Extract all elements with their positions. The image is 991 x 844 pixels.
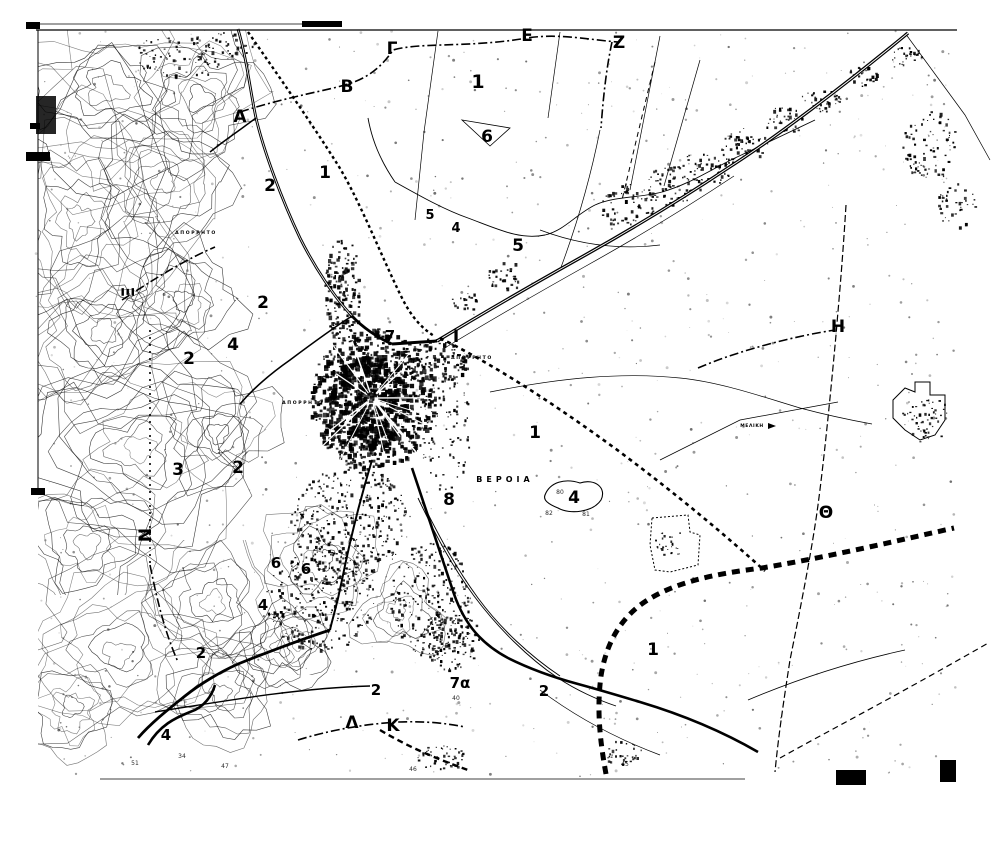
noise-dot bbox=[281, 103, 283, 105]
noise-dot bbox=[442, 139, 444, 141]
noise-dot bbox=[311, 551, 313, 553]
noise-dot bbox=[820, 642, 822, 644]
urban-block bbox=[331, 371, 335, 375]
urban-block bbox=[338, 306, 341, 308]
urban-block bbox=[418, 551, 421, 554]
noise-dot bbox=[699, 57, 700, 58]
urban-block bbox=[361, 445, 364, 449]
urban-block bbox=[469, 644, 471, 645]
urban-block bbox=[372, 427, 377, 434]
urban-block bbox=[314, 549, 315, 550]
urban-block bbox=[349, 569, 351, 570]
urban-block bbox=[454, 385, 456, 387]
village-building bbox=[774, 126, 777, 129]
urban-block bbox=[344, 370, 348, 374]
urban-block bbox=[442, 373, 444, 375]
urban-block bbox=[333, 284, 336, 288]
urban-block bbox=[369, 585, 372, 588]
urban-block bbox=[304, 581, 307, 584]
urban-block bbox=[414, 346, 416, 347]
noise-dot bbox=[426, 491, 428, 493]
urban-block bbox=[401, 374, 403, 376]
urban-block bbox=[323, 527, 325, 529]
noise-dot bbox=[941, 50, 944, 53]
noise-dot bbox=[355, 670, 357, 672]
village-building bbox=[701, 163, 702, 165]
urban-block bbox=[332, 487, 334, 489]
urban-block bbox=[313, 510, 314, 512]
urban-block bbox=[438, 574, 440, 576]
village-building bbox=[836, 95, 838, 97]
noise-dot bbox=[628, 501, 629, 502]
noise-dot bbox=[249, 411, 251, 413]
village-building bbox=[814, 98, 817, 102]
noise-dot bbox=[548, 370, 550, 372]
noise-dot bbox=[331, 274, 333, 276]
village-building bbox=[910, 125, 912, 128]
village-building bbox=[909, 47, 911, 49]
noise-dot bbox=[294, 462, 297, 465]
noise-dot bbox=[591, 192, 594, 195]
village-building bbox=[205, 70, 206, 71]
village-building bbox=[913, 155, 916, 158]
noise-dot bbox=[36, 296, 37, 297]
village-building bbox=[947, 191, 949, 193]
urban-block bbox=[360, 580, 361, 581]
urban-block bbox=[363, 505, 364, 507]
noise-dot bbox=[660, 610, 661, 611]
village-building bbox=[672, 543, 674, 545]
noise-dot bbox=[752, 346, 754, 348]
urban-block bbox=[355, 262, 357, 264]
village-building bbox=[616, 749, 618, 751]
village-building bbox=[736, 136, 737, 137]
village-building bbox=[621, 193, 622, 194]
urban-block bbox=[278, 618, 279, 619]
village-building bbox=[779, 109, 781, 111]
noise-dot bbox=[131, 660, 133, 662]
urban-block bbox=[406, 348, 409, 350]
urban-block bbox=[346, 608, 348, 611]
urban-block bbox=[293, 636, 295, 639]
noise-dot bbox=[463, 526, 464, 527]
urban-block bbox=[322, 491, 324, 492]
noise-dot bbox=[589, 689, 590, 690]
urban-block bbox=[432, 441, 434, 443]
noise-dot bbox=[674, 591, 676, 593]
urban-block bbox=[438, 620, 441, 622]
urban-block bbox=[430, 427, 432, 430]
urban-block bbox=[325, 576, 327, 577]
village-building bbox=[217, 66, 219, 68]
urban-block bbox=[357, 632, 359, 633]
village-building bbox=[872, 76, 875, 79]
village-building bbox=[965, 223, 968, 226]
urban-block bbox=[363, 557, 365, 559]
urban-block bbox=[336, 558, 339, 561]
urban-block bbox=[416, 553, 417, 554]
urban-block bbox=[351, 267, 354, 270]
urban-block bbox=[394, 389, 399, 393]
noise-dot bbox=[222, 523, 224, 525]
urban-block bbox=[342, 272, 345, 275]
noise-dot bbox=[445, 187, 447, 189]
urban-block bbox=[390, 501, 392, 504]
village-building bbox=[942, 168, 945, 171]
village-building bbox=[707, 155, 709, 156]
village-building bbox=[898, 48, 899, 50]
urban-block bbox=[319, 480, 320, 481]
urban-block bbox=[384, 408, 386, 410]
urban-block bbox=[312, 594, 313, 595]
noise-dot bbox=[910, 623, 912, 625]
urban-block bbox=[370, 342, 373, 346]
urban-block bbox=[430, 364, 432, 366]
noise-dot bbox=[284, 542, 286, 544]
urban-block bbox=[360, 449, 362, 451]
urban-block bbox=[273, 617, 276, 619]
noise-dot bbox=[359, 531, 361, 533]
noise-dot bbox=[692, 626, 693, 627]
noise-dot bbox=[224, 459, 225, 460]
urban-block bbox=[397, 377, 402, 382]
noise-dot bbox=[933, 79, 936, 82]
village-building bbox=[913, 164, 914, 165]
urban-block bbox=[454, 650, 456, 653]
urban-block bbox=[421, 390, 425, 395]
noise-dot bbox=[84, 755, 86, 757]
urban-block bbox=[305, 609, 307, 610]
urban-block bbox=[318, 376, 321, 380]
village-building bbox=[928, 432, 930, 434]
noise-dot bbox=[260, 754, 262, 756]
urban-block bbox=[431, 438, 433, 440]
noise-dot bbox=[391, 220, 393, 222]
urban-block bbox=[342, 601, 345, 604]
urban-block bbox=[268, 590, 269, 591]
village-building bbox=[974, 199, 976, 201]
urban-block bbox=[337, 241, 340, 243]
village-building bbox=[960, 209, 963, 211]
urban-block bbox=[322, 556, 323, 557]
urban-block bbox=[339, 291, 342, 293]
urban-block bbox=[400, 445, 403, 449]
urban-block bbox=[333, 277, 336, 280]
noise-dot bbox=[704, 643, 705, 644]
noise-dot bbox=[636, 39, 637, 40]
urban-block bbox=[378, 537, 380, 538]
urban-block bbox=[321, 590, 323, 591]
village-building bbox=[659, 183, 661, 185]
village-building bbox=[207, 62, 208, 64]
village-building bbox=[724, 164, 726, 167]
urban-block bbox=[456, 422, 457, 424]
urban-block bbox=[390, 483, 391, 485]
urban-block bbox=[448, 411, 450, 413]
urban-block bbox=[329, 254, 332, 258]
urban-block bbox=[317, 642, 318, 644]
urban-block bbox=[304, 524, 305, 525]
noise-dot bbox=[823, 162, 824, 163]
urban-block bbox=[353, 332, 356, 334]
noise-dot bbox=[149, 232, 151, 234]
noise-dot bbox=[447, 539, 448, 540]
place-label: ΑΠΟΡΡΗΤΟ bbox=[175, 230, 217, 236]
noise-dot bbox=[523, 177, 525, 179]
urban-block bbox=[339, 550, 342, 553]
noise-dot bbox=[615, 769, 618, 772]
urban-block bbox=[463, 464, 465, 467]
urban-block bbox=[397, 354, 399, 356]
noise-dot bbox=[567, 721, 570, 724]
noise-dot bbox=[307, 111, 308, 112]
urban-block bbox=[350, 493, 353, 497]
urban-block bbox=[374, 479, 376, 481]
urban-block bbox=[360, 516, 361, 517]
noise-dot bbox=[387, 622, 388, 623]
urban-block bbox=[433, 399, 437, 401]
urban-block bbox=[385, 424, 387, 427]
urban-block bbox=[383, 500, 385, 502]
zone-number: 5 bbox=[512, 236, 524, 256]
urban-block bbox=[312, 615, 315, 618]
noise-dot bbox=[457, 595, 459, 597]
noise-dot bbox=[633, 201, 634, 202]
urban-block bbox=[416, 371, 418, 374]
urban-block bbox=[311, 515, 313, 517]
urban-block bbox=[327, 408, 329, 411]
noise-dot bbox=[366, 174, 369, 177]
noise-dot bbox=[954, 686, 957, 689]
urban-block bbox=[331, 262, 333, 264]
noise-dot bbox=[849, 357, 850, 358]
noise-dot bbox=[51, 188, 53, 190]
noise-dot bbox=[135, 71, 137, 73]
urban-block bbox=[434, 365, 437, 368]
village-building bbox=[961, 202, 963, 203]
noise-dot bbox=[379, 227, 382, 230]
urban-block bbox=[417, 617, 420, 620]
urban-block bbox=[317, 591, 319, 592]
village-building bbox=[463, 298, 465, 300]
urban-block bbox=[457, 560, 459, 562]
village-building bbox=[431, 755, 432, 757]
urban-block bbox=[344, 634, 346, 636]
village-building bbox=[838, 101, 839, 102]
urban-block bbox=[346, 263, 349, 265]
village-building bbox=[662, 175, 664, 177]
village-building bbox=[960, 207, 961, 208]
noise-dot bbox=[72, 551, 75, 554]
village-building bbox=[813, 92, 815, 94]
village-building bbox=[166, 74, 168, 77]
urban-block bbox=[321, 546, 323, 548]
urban-block bbox=[403, 391, 407, 396]
urban-block bbox=[317, 415, 320, 417]
edge-dark-patch bbox=[36, 96, 56, 134]
urban-block bbox=[347, 424, 351, 426]
village-building bbox=[452, 759, 454, 760]
village-building bbox=[649, 193, 652, 196]
section-letter: Β bbox=[341, 77, 354, 97]
noise-dot bbox=[673, 653, 675, 655]
urban-block bbox=[317, 492, 320, 494]
urban-block bbox=[347, 253, 349, 256]
urban-block bbox=[392, 559, 393, 560]
urban-block bbox=[403, 354, 406, 357]
village-building bbox=[189, 59, 191, 60]
urban-block bbox=[441, 639, 442, 641]
noise-dot bbox=[288, 527, 289, 528]
village-building bbox=[492, 271, 495, 274]
urban-block bbox=[341, 284, 343, 286]
noise-dot bbox=[695, 109, 698, 112]
urban-block bbox=[462, 641, 464, 643]
urban-block bbox=[464, 419, 466, 422]
urban-block bbox=[357, 396, 360, 399]
noise-dot bbox=[59, 728, 61, 730]
noise-dot bbox=[935, 755, 937, 757]
village-building bbox=[608, 760, 611, 763]
noise-dot bbox=[433, 192, 436, 195]
noise-dot bbox=[598, 71, 601, 74]
noise-dot bbox=[223, 560, 225, 562]
village-building bbox=[949, 135, 950, 136]
noise-dot bbox=[121, 120, 123, 122]
village-building bbox=[710, 168, 712, 170]
noise-dot bbox=[489, 703, 491, 705]
urban-block bbox=[415, 433, 417, 435]
urban-block bbox=[453, 553, 455, 555]
urban-block bbox=[440, 665, 442, 667]
noise-dot bbox=[929, 374, 932, 377]
urban-block bbox=[320, 649, 323, 653]
urban-block bbox=[377, 510, 380, 513]
noise-dot bbox=[246, 118, 249, 121]
urban-block bbox=[341, 366, 345, 370]
noise-dot bbox=[778, 361, 779, 362]
village-building bbox=[475, 300, 478, 302]
village-building bbox=[909, 53, 911, 55]
village-building bbox=[488, 275, 490, 277]
noise-dot bbox=[877, 364, 878, 365]
village-building bbox=[911, 134, 913, 135]
village-building bbox=[646, 212, 648, 214]
urban-block bbox=[434, 659, 436, 660]
urban-block bbox=[287, 636, 289, 639]
village-building bbox=[737, 151, 740, 154]
village-building bbox=[938, 205, 941, 208]
noise-dot bbox=[400, 523, 403, 526]
urban-block bbox=[317, 551, 318, 553]
noise-dot bbox=[633, 110, 635, 112]
urban-block bbox=[398, 598, 401, 602]
noise-dot bbox=[372, 579, 374, 581]
urban-block bbox=[367, 574, 369, 576]
village-building bbox=[942, 197, 945, 199]
village-building bbox=[921, 422, 923, 423]
village-building bbox=[205, 45, 207, 48]
noise-dot bbox=[132, 504, 133, 505]
urban-block bbox=[333, 553, 336, 555]
village-building bbox=[195, 62, 196, 63]
urban-block bbox=[337, 317, 339, 319]
urban-block bbox=[377, 345, 379, 347]
village-building bbox=[748, 140, 750, 143]
urban-block bbox=[373, 465, 375, 468]
village-building bbox=[864, 84, 867, 86]
noise-dot bbox=[609, 64, 610, 65]
zone-number: 4 bbox=[451, 221, 460, 236]
village-building bbox=[178, 67, 181, 71]
urban-block bbox=[347, 285, 349, 286]
urban-block bbox=[331, 276, 333, 277]
urban-block bbox=[429, 362, 431, 365]
noise-dot bbox=[781, 537, 783, 539]
noise-dot bbox=[473, 40, 475, 42]
village-building bbox=[227, 50, 228, 52]
noise-dot bbox=[549, 460, 551, 462]
village-building bbox=[687, 159, 689, 161]
noise-dot bbox=[262, 371, 265, 374]
noise-dot bbox=[182, 567, 184, 569]
noise-dot bbox=[828, 759, 830, 761]
village-building bbox=[218, 33, 219, 34]
noise-dot bbox=[591, 660, 594, 663]
village-building bbox=[448, 756, 450, 758]
urban-block bbox=[403, 599, 405, 601]
village-building bbox=[489, 270, 491, 273]
village-building bbox=[917, 170, 919, 172]
noise-dot bbox=[587, 246, 588, 247]
village-building bbox=[931, 417, 933, 419]
urban-block bbox=[342, 267, 344, 269]
urban-block bbox=[465, 595, 466, 596]
urban-block bbox=[440, 404, 442, 407]
noise-dot bbox=[401, 424, 402, 425]
village-building bbox=[611, 757, 613, 758]
noise-dot bbox=[394, 141, 397, 144]
urban-block bbox=[337, 613, 339, 615]
urban-block bbox=[340, 360, 343, 363]
urban-block bbox=[323, 406, 326, 409]
noise-dot bbox=[280, 685, 281, 686]
noise-dot bbox=[648, 689, 649, 690]
noise-dot bbox=[615, 712, 618, 715]
village-building bbox=[145, 53, 146, 54]
noise-dot bbox=[315, 376, 316, 377]
village-building bbox=[633, 219, 635, 221]
urban-block bbox=[349, 447, 353, 452]
urban-block bbox=[390, 360, 392, 362]
noise-dot bbox=[49, 220, 51, 222]
urban-block bbox=[451, 445, 453, 446]
urban-block bbox=[435, 622, 436, 623]
village-building bbox=[662, 538, 664, 540]
urban-block bbox=[336, 581, 338, 584]
noise-dot bbox=[126, 488, 129, 491]
urban-block bbox=[387, 480, 389, 482]
noise-dot bbox=[778, 662, 780, 664]
urban-block bbox=[319, 486, 321, 488]
urban-block bbox=[331, 609, 333, 611]
noise-dot bbox=[591, 517, 594, 520]
noise-dot bbox=[228, 566, 229, 567]
urban-block bbox=[340, 557, 341, 558]
village-building bbox=[914, 172, 916, 174]
noise-dot bbox=[197, 113, 198, 114]
urban-block bbox=[345, 399, 347, 401]
